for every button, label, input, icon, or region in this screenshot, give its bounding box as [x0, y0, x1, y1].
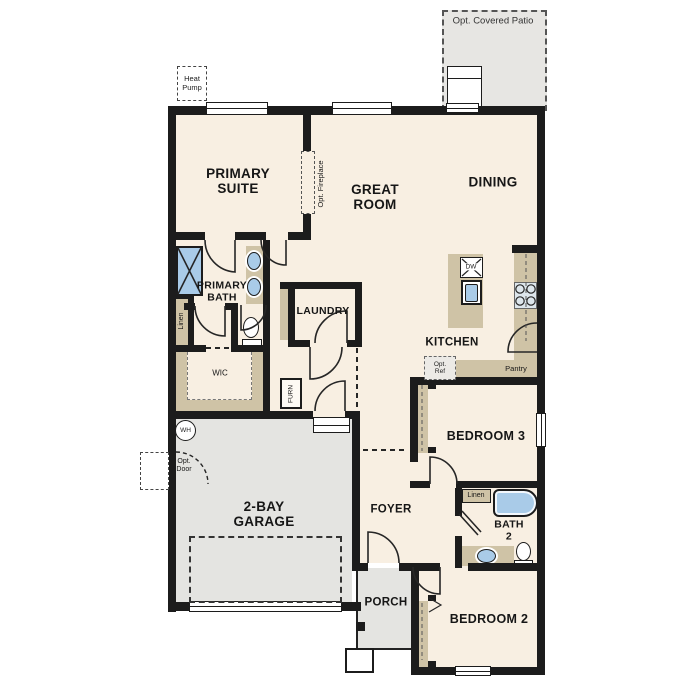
kitchen-label: KITCHEN: [425, 337, 478, 350]
bath2-label: BATH 2: [494, 519, 524, 543]
wall: [411, 563, 419, 675]
opt-fireplace-label: Opt. Fireplace: [317, 160, 325, 207]
wall: [288, 232, 311, 240]
wall: [263, 345, 270, 418]
patio-sliding-door: [446, 103, 479, 113]
wall: [428, 661, 436, 667]
wall: [176, 294, 194, 299]
heat-pump-box: Heat Pump: [177, 66, 207, 101]
wall: [428, 447, 436, 453]
wall: [455, 536, 462, 568]
furnace-label: FURN: [287, 384, 294, 402]
wall: [410, 481, 430, 488]
primary-toilet-bowl: [243, 317, 259, 338]
porch-label: PORCH: [364, 597, 407, 610]
bath2-linen-label: Linen: [467, 492, 484, 500]
wall: [410, 377, 418, 462]
garage-label: 2-BAY GARAGE: [233, 499, 294, 529]
garage-entry-step: [313, 417, 350, 433]
wall: [176, 345, 206, 352]
floor-plan: Heat Pump WH FURN: [0, 0, 687, 687]
wall: [428, 595, 436, 601]
wall: [355, 282, 362, 347]
dining-label: DINING: [468, 174, 517, 189]
wall: [176, 232, 205, 240]
porch-step: [345, 648, 374, 673]
primary-suite-window: [206, 102, 268, 115]
furnace-box: FURN: [280, 378, 302, 409]
bath2-toilet-bowl: [516, 542, 531, 561]
great-room-window: [332, 102, 392, 115]
patio-label: Opt. Covered Patio: [453, 17, 534, 28]
primary-bath-label: PRIMARY BATH: [197, 280, 247, 304]
bedroom2-label: BEDROOM 2: [450, 612, 528, 626]
wall: [168, 411, 313, 419]
island-sink: [465, 284, 478, 302]
wall: [456, 481, 537, 488]
bedroom3-window: [536, 413, 546, 447]
opt-fireplace-box: [301, 151, 315, 214]
wall: [512, 245, 537, 253]
wall: [188, 296, 194, 348]
wic-shelf-bottom: [176, 400, 263, 411]
primary-linen-label: Linen: [178, 312, 186, 329]
wall: [225, 303, 231, 310]
wic-label: WIC: [212, 370, 228, 379]
wall: [411, 563, 440, 571]
great-room-label: GREAT ROOM: [351, 182, 399, 212]
opt-door-pad: [140, 452, 169, 490]
bedroom2-window: [455, 666, 491, 676]
kitchen-counter-right: [514, 253, 537, 377]
laundry-label: LAUNDRY: [296, 306, 349, 318]
garage-door-area: [189, 536, 342, 603]
wall: [168, 106, 176, 612]
hall-closet: [280, 289, 288, 340]
wall: [288, 340, 310, 347]
foyer-label: FOYER: [370, 504, 411, 517]
primary-sink-2: [247, 278, 261, 296]
primary-sink-1: [247, 252, 261, 270]
wall: [428, 383, 436, 389]
stove: [514, 282, 537, 309]
bedroom3-label: BEDROOM 3: [447, 429, 525, 443]
dishwasher-label: DW: [465, 263, 478, 270]
opt-ref-box: Opt. Ref: [424, 356, 456, 380]
bath2-sink: [477, 549, 496, 563]
wall: [288, 282, 295, 347]
wall: [352, 411, 360, 571]
wall: [263, 240, 270, 345]
opt-door-label: Opt. Door: [176, 458, 191, 474]
wall: [468, 563, 537, 571]
patio-equipment: [447, 66, 482, 107]
pantry-label: Pantry: [505, 365, 527, 373]
bedroom3-closet: [417, 383, 428, 453]
wall: [537, 106, 545, 675]
bathtub: [493, 489, 538, 517]
porch-column: [356, 622, 365, 631]
water-heater: WH: [175, 420, 196, 441]
primary-suite-label: PRIMARY SUITE: [206, 166, 270, 196]
wall: [235, 232, 266, 240]
wall: [455, 488, 462, 516]
wall: [347, 340, 362, 347]
